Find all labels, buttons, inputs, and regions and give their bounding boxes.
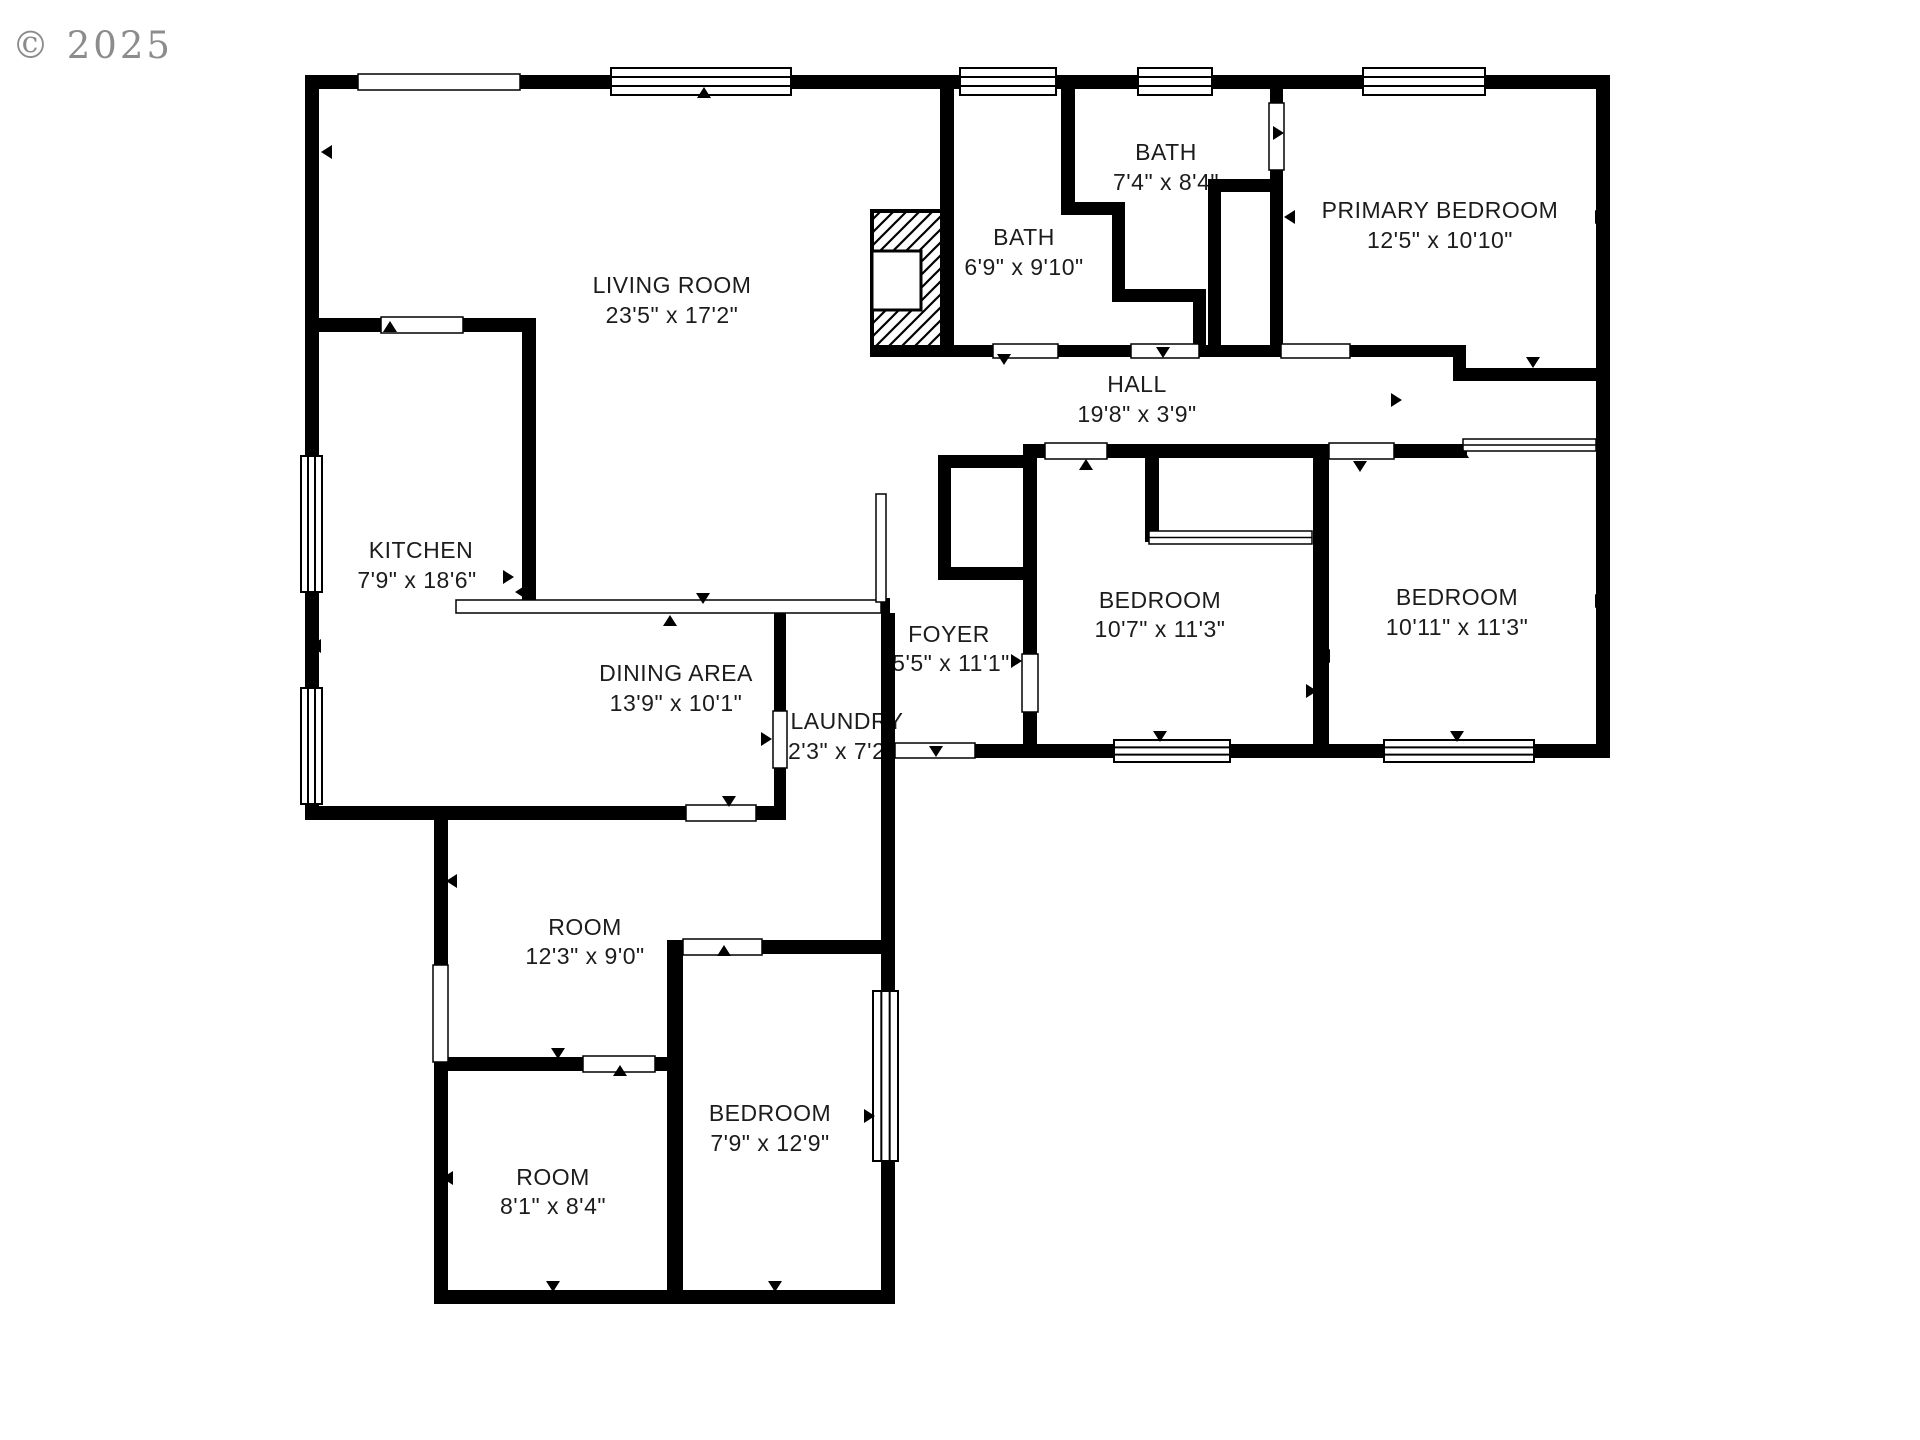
room-label-room-1: ROOM: [548, 914, 622, 940]
fireplace-hatch-icon: [872, 211, 944, 349]
room-dims-foyer: 5'5" x 11'1": [892, 650, 1010, 676]
room-label-kitchen: KITCHEN: [369, 537, 473, 563]
room-dims-bath-1: 6'9" x 9'10": [964, 254, 1083, 280]
room-label-bedroom-2: BEDROOM: [1396, 584, 1518, 610]
room-label-foyer: FOYER: [908, 621, 990, 647]
room-label-bedroom-1: BEDROOM: [1099, 587, 1221, 613]
room-dims-hall: 19'8" x 3'9": [1077, 401, 1196, 427]
room-label-bath-2: BATH: [1135, 139, 1197, 165]
copyright-watermark: © 2025: [12, 24, 173, 67]
room-label-dining-area: DINING AREA: [599, 660, 753, 686]
room-label-bath-1: BATH: [993, 224, 1055, 250]
room-label-room-2: ROOM: [516, 1164, 590, 1190]
room-dims-laundry: 2'3" x 7'2": [788, 738, 894, 764]
room-dims-living-room: 23'5" x 17'2": [606, 302, 739, 328]
room-dims-bedroom-1: 10'7" x 11'3": [1095, 616, 1226, 642]
floor-plan-drawing: LIVING ROOM 23'5" x 17'2" BATH 6'9" x 9'…: [0, 0, 1920, 1440]
room-label-living-room: LIVING ROOM: [593, 272, 752, 298]
room-dims-room-2: 8'1" x 8'4": [500, 1193, 606, 1219]
floor-plan-page: LIVING ROOM 23'5" x 17'2" BATH 6'9" x 9'…: [0, 0, 1920, 1440]
background: [0, 0, 1920, 1440]
room-dims-bedroom-2: 10'11" x 11'3": [1386, 614, 1529, 640]
room-dims-kitchen: 7'9" x 18'6": [357, 567, 476, 593]
room-dims-bath-2: 7'4" x 8'4": [1113, 169, 1219, 195]
room-dims-primary-bedroom: 12'5" x 10'10": [1367, 227, 1513, 253]
room-label-hall: HALL: [1107, 371, 1167, 397]
room-dims-room-1: 12'3" x 9'0": [525, 943, 644, 969]
room-dims-bedroom-3: 7'9" x 12'9": [710, 1130, 829, 1156]
room-label-primary-bedroom: PRIMARY BEDROOM: [1322, 197, 1559, 223]
room-dims-dining-area: 13'9" x 10'1": [610, 690, 743, 716]
room-label-bedroom-3: BEDROOM: [709, 1100, 831, 1126]
